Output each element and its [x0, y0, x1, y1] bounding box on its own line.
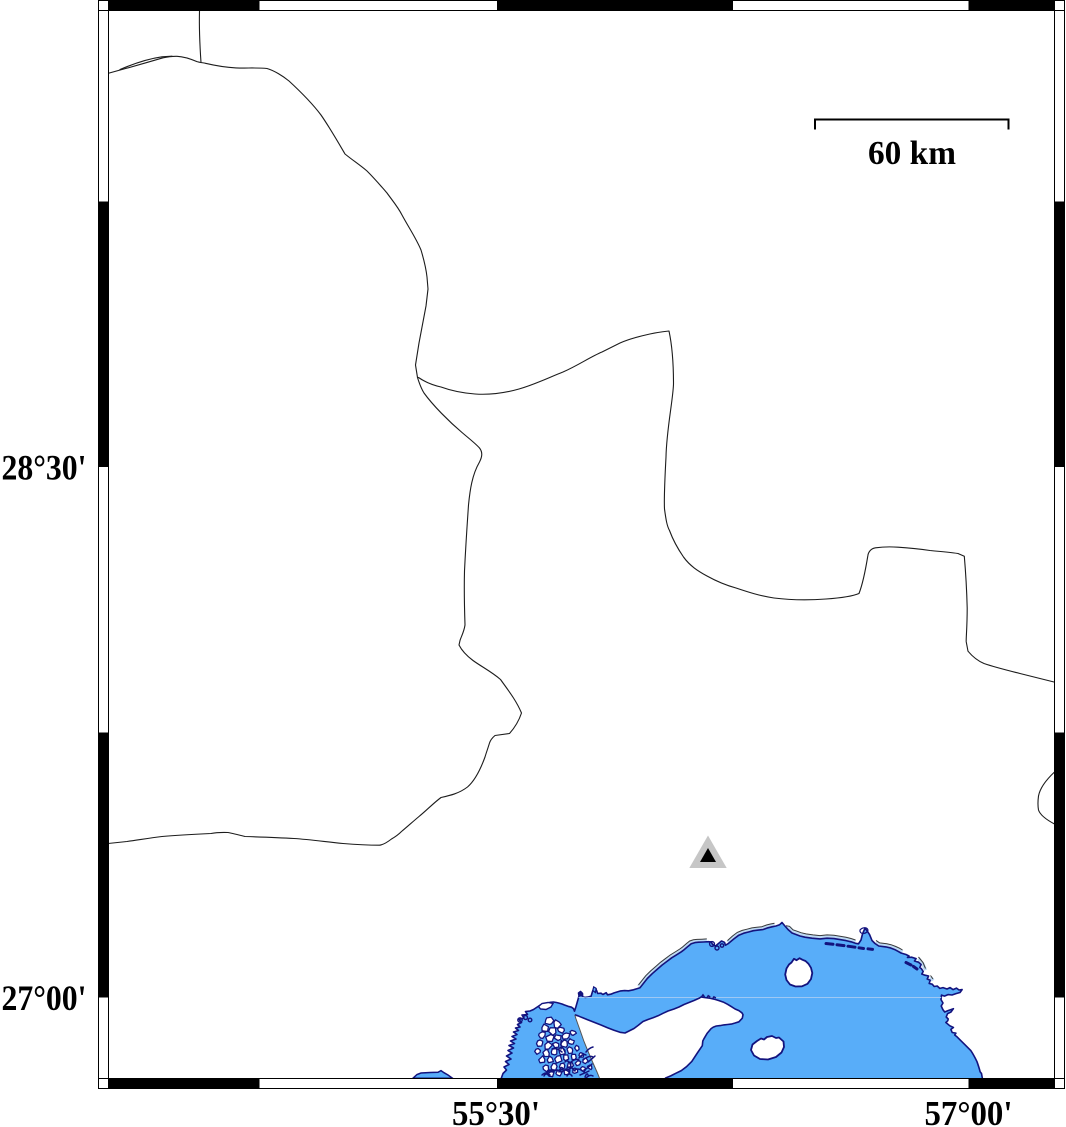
svg-text:57°00': 57°00': [925, 1094, 1013, 1127]
svg-text:27°00': 27°00': [2, 978, 87, 1018]
svg-text:55°30': 55°30': [452, 1094, 540, 1127]
svg-text:60 km: 60 km: [868, 135, 956, 172]
svg-text:28°30': 28°30': [2, 448, 87, 488]
